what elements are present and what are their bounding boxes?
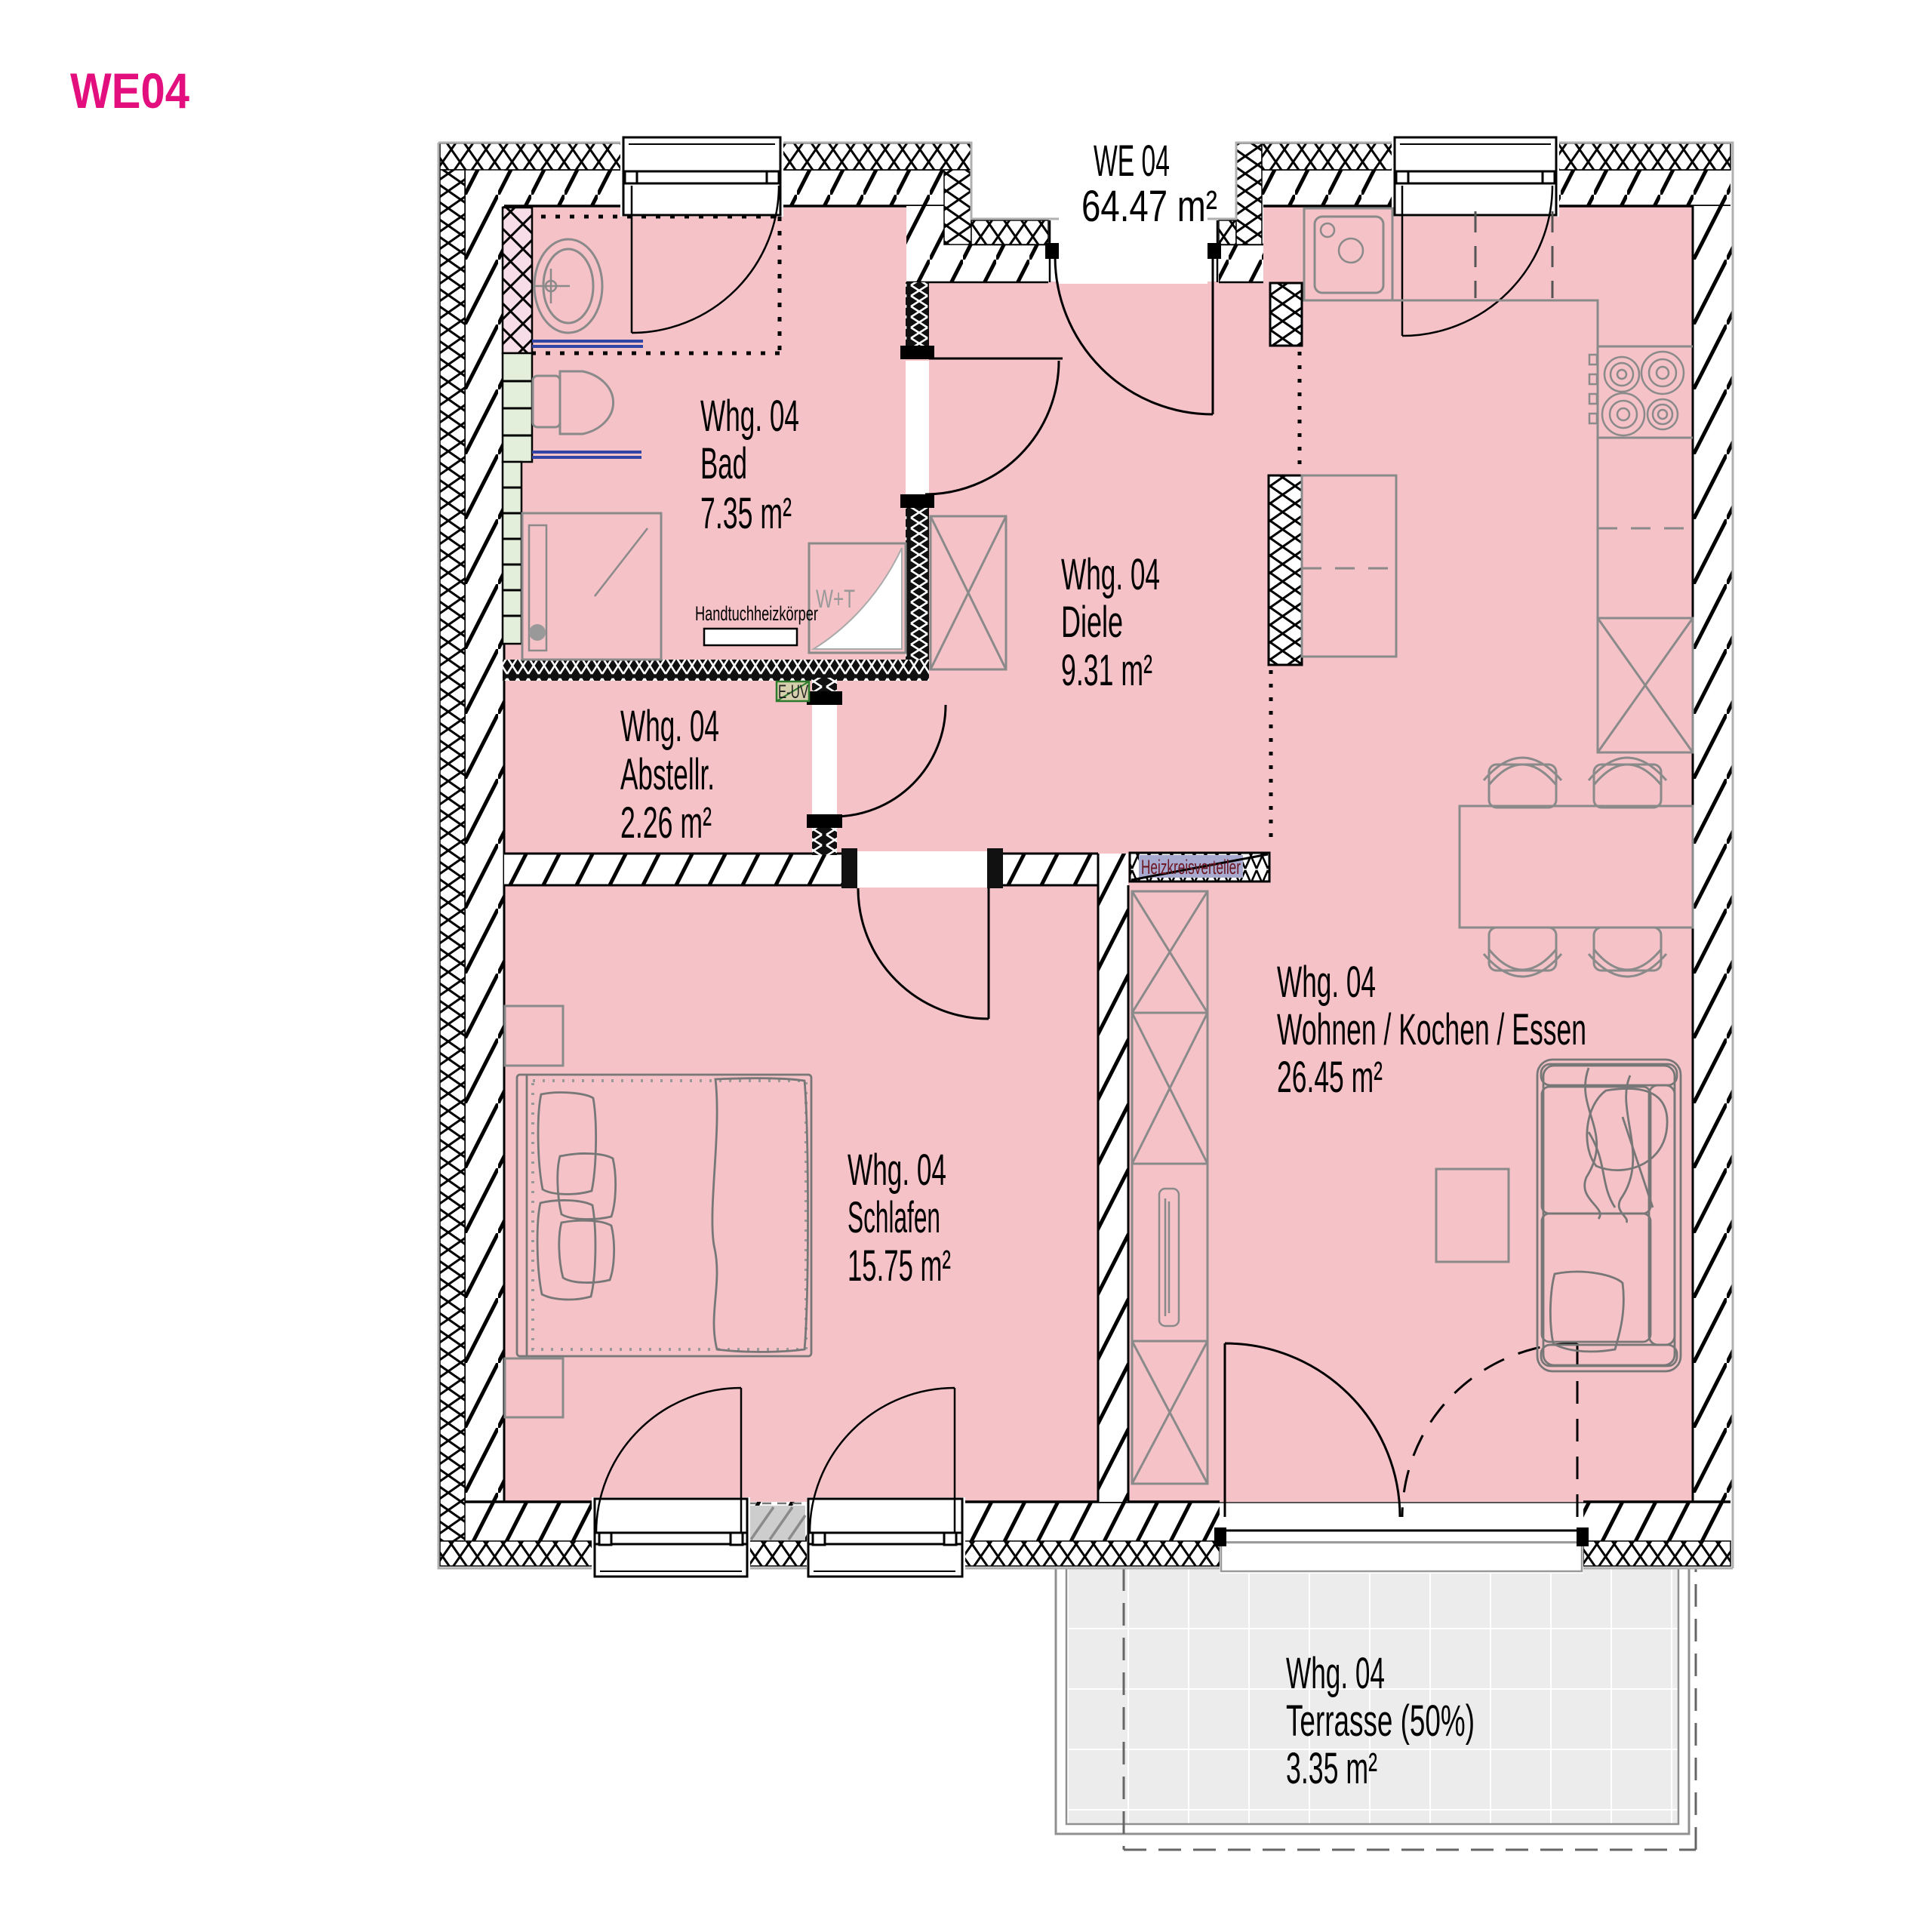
svg-text:Schlafen: Schlafen: [848, 1193, 940, 1242]
svg-text:Whg. 04: Whg. 04: [1061, 550, 1160, 599]
svg-text:Bad: Bad: [700, 439, 747, 488]
svg-text:15.75 m²: 15.75 m²: [848, 1241, 951, 1291]
svg-text:Whg. 04: Whg. 04: [1277, 958, 1376, 1007]
svg-text:9.31 m²: 9.31 m²: [1061, 646, 1152, 695]
svg-text:26.45 m²: 26.45 m²: [1277, 1053, 1383, 1102]
svg-text:64.47 m²: 64.47 m²: [1081, 182, 1217, 231]
svg-text:W+T: W+T: [816, 585, 855, 614]
svg-text:Whg. 04: Whg. 04: [1286, 1649, 1385, 1698]
svg-text:Abstellr.: Abstellr.: [620, 750, 715, 799]
svg-text:Heizkreisverteiler: Heizkreisverteiler: [1141, 856, 1241, 878]
svg-text:Whg. 04: Whg. 04: [848, 1146, 946, 1195]
svg-text:WE 04: WE 04: [1094, 137, 1170, 186]
svg-text:2.26 m²: 2.26 m²: [620, 798, 712, 848]
svg-text:Whg. 04: Whg. 04: [620, 702, 719, 751]
svg-text:Wohnen / Kochen / Essen: Wohnen / Kochen / Essen: [1277, 1005, 1586, 1054]
svg-text:Whg. 04: Whg. 04: [700, 392, 799, 441]
svg-text:Diele: Diele: [1061, 598, 1123, 647]
svg-text:7.35 m²: 7.35 m²: [700, 489, 792, 538]
svg-text:3.35 m²: 3.35 m²: [1286, 1744, 1377, 1793]
svg-text:WE04: WE04: [70, 63, 189, 118]
svg-text:Terrasse (50%): Terrasse (50%): [1286, 1697, 1475, 1746]
svg-text:E-UV: E-UV: [778, 681, 808, 703]
svg-text:Handtuchheizkörper: Handtuchheizkörper: [695, 602, 818, 625]
